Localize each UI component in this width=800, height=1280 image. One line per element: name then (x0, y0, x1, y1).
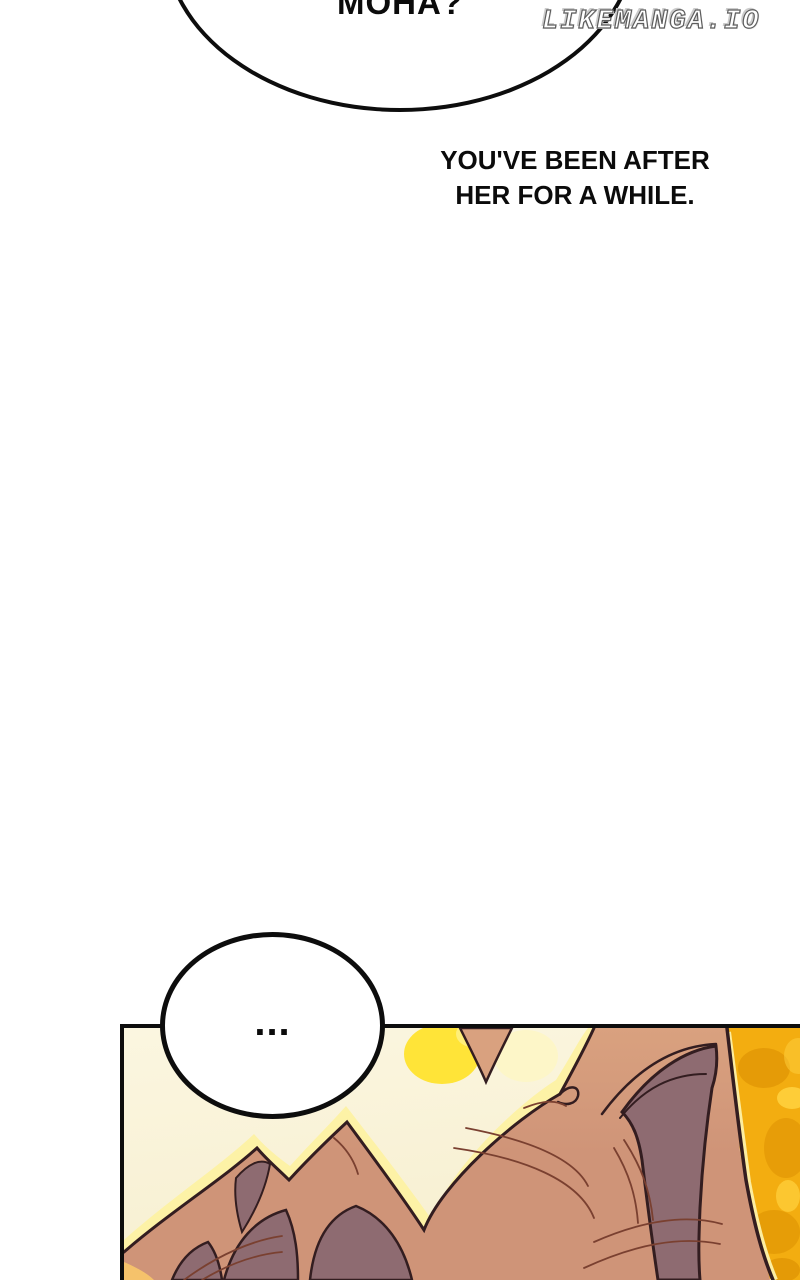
ellipsis-speech-bubble: ... (160, 932, 385, 1119)
site-watermark: LIKEMANGA.IO (542, 7, 760, 37)
manga-page: MOHA? LIKEMANGA.IO YOU'VE BEEN AFTER HER… (0, 0, 800, 1280)
narration-line-1: YOU'VE BEEN AFTER (425, 143, 725, 178)
narration-line-2: HER FOR A WHILE. (425, 178, 725, 213)
narration-text: YOU'VE BEEN AFTER HER FOR A WHILE. (425, 143, 725, 213)
top-speech-bubble-text: MOHA? (300, 0, 500, 19)
